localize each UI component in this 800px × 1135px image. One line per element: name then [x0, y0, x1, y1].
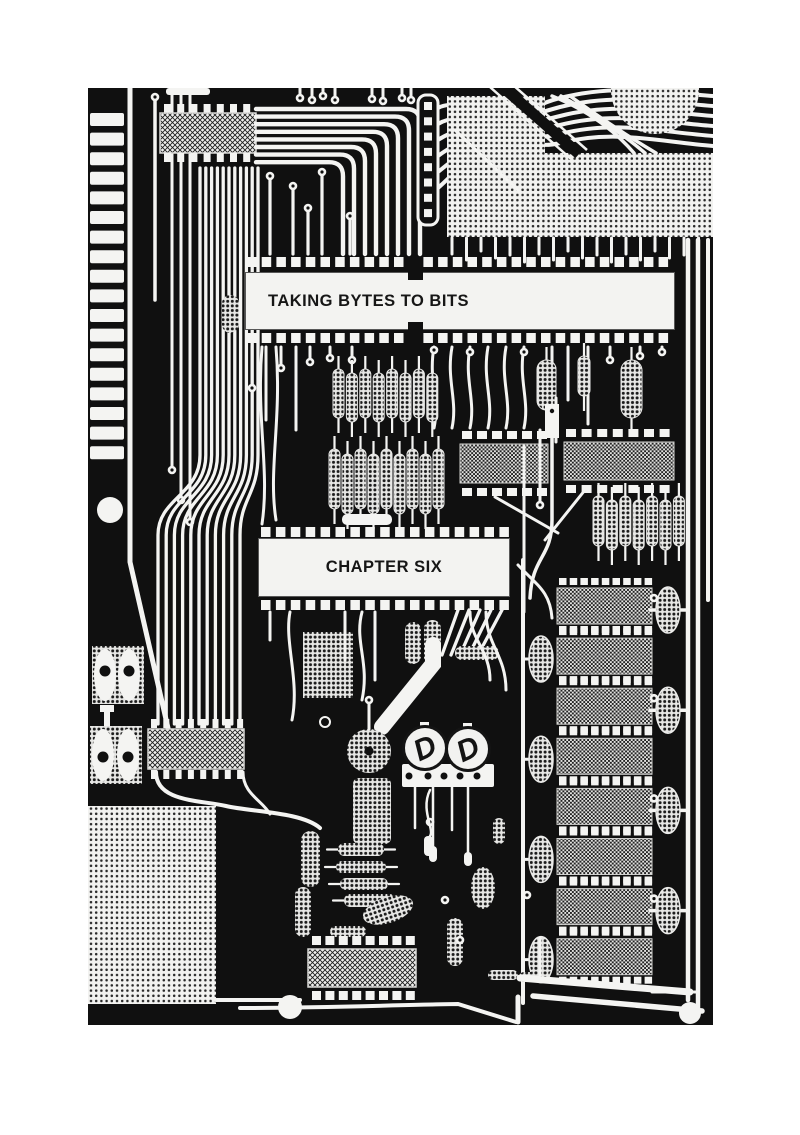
- edge-finger: [90, 133, 124, 146]
- pin-pad: [424, 133, 432, 141]
- resistor: [381, 449, 392, 509]
- hole: [406, 773, 413, 780]
- pin-pad: [602, 778, 610, 785]
- pin-pad: [392, 991, 401, 1000]
- resistor: [621, 360, 642, 418]
- edge-finger: [90, 368, 124, 381]
- pin-pad: [225, 719, 231, 728]
- pin-pad: [526, 257, 536, 267]
- pin-pad: [602, 929, 610, 936]
- pin-pad: [325, 991, 334, 1000]
- via-hole: [367, 698, 370, 701]
- capacitor: [336, 861, 386, 873]
- via-hole: [381, 99, 384, 102]
- resistor: [427, 373, 438, 422]
- capacitor: [338, 843, 384, 856]
- pin-pad: [350, 257, 360, 267]
- resistor: [329, 449, 340, 509]
- via-hole: [321, 94, 324, 97]
- pin-pad: [247, 257, 257, 267]
- hole: [474, 773, 481, 780]
- pin-pad: [392, 936, 401, 945]
- pin-pad: [623, 829, 631, 836]
- pin-pad: [243, 104, 250, 113]
- pin-pad: [499, 600, 509, 610]
- pin-pad: [570, 333, 580, 343]
- edge-finger: [90, 348, 124, 361]
- pin-pad: [291, 600, 301, 610]
- memory-chip: [557, 588, 652, 624]
- capacitor: [529, 736, 553, 782]
- pin-pad: [291, 527, 301, 537]
- capacitor: [301, 831, 320, 887]
- via-hole: [432, 348, 435, 351]
- pin-pad: [394, 333, 404, 343]
- pin-pad: [379, 257, 389, 267]
- pin-pad: [306, 257, 316, 267]
- pin-pad: [312, 936, 321, 945]
- capacitor: [529, 836, 553, 882]
- pin-pad: [570, 778, 578, 785]
- capacitor: [488, 970, 518, 980]
- pin-pad: [410, 527, 420, 537]
- edge-finger: [90, 289, 124, 302]
- pin-pad: [580, 879, 588, 886]
- via-hole: [660, 350, 663, 353]
- pin-pad: [306, 333, 316, 343]
- resistor: [420, 454, 431, 514]
- via-hole: [608, 358, 611, 361]
- capacitor: [455, 646, 499, 660]
- pin-pad: [591, 628, 599, 635]
- edge-finger: [90, 231, 124, 244]
- pin-pad: [645, 678, 653, 685]
- pin-pad: [200, 719, 206, 728]
- hole: [441, 773, 448, 780]
- pin-pad: [602, 879, 610, 886]
- pin-pad: [580, 678, 588, 685]
- top-right-halftone: [447, 88, 713, 237]
- pin-pad: [602, 578, 610, 585]
- pin-pad: [440, 600, 450, 610]
- hole: [457, 773, 464, 780]
- hole: [98, 752, 109, 763]
- hole: [123, 752, 134, 763]
- pin-pad: [623, 778, 631, 785]
- pin-pad: [597, 485, 607, 493]
- bottom-left-block: [88, 806, 216, 1004]
- pin-pad: [615, 333, 625, 343]
- pin-pad: [163, 719, 169, 728]
- sip-strip: [418, 95, 438, 225]
- edge-finger: [90, 270, 124, 283]
- pin-pad: [623, 728, 631, 735]
- pin-pad: [645, 628, 653, 635]
- pin-pad: [645, 879, 653, 886]
- capacitor: [353, 778, 391, 844]
- pin-pad: [306, 600, 316, 610]
- pin-pad: [645, 578, 653, 585]
- pin-pad: [188, 770, 194, 779]
- pin-pad: [613, 778, 621, 785]
- pin-pad: [424, 179, 432, 187]
- pin-pad: [559, 879, 567, 886]
- component: [342, 514, 392, 525]
- pin-pad: [204, 104, 211, 113]
- component: [464, 852, 472, 866]
- pin-pad: [634, 829, 642, 836]
- pin-pad: [507, 488, 517, 496]
- pin-pad: [634, 678, 642, 685]
- pin-pad: [262, 257, 272, 267]
- via-hole: [525, 893, 528, 896]
- edge-finger: [90, 211, 124, 224]
- pin-pad: [628, 485, 638, 493]
- pin-pad: [438, 333, 448, 343]
- pin-pad: [217, 104, 224, 113]
- pin-pad: [591, 829, 599, 836]
- pin-pad: [659, 333, 669, 343]
- pin-pad: [379, 991, 388, 1000]
- pin-pad: [570, 929, 578, 936]
- pin-pad: [425, 600, 435, 610]
- pin-pad: [497, 257, 507, 267]
- pin-pad: [559, 829, 567, 836]
- pin-pad: [644, 485, 654, 493]
- pin-pad: [237, 719, 243, 728]
- pin-pad: [164, 153, 171, 162]
- pin-pad: [151, 719, 157, 728]
- pin-pad: [425, 527, 435, 537]
- pin-pad: [634, 578, 642, 585]
- hole: [425, 773, 432, 780]
- pin-pad: [570, 829, 578, 836]
- pin-pad: [336, 527, 346, 537]
- pin-pad: [261, 527, 271, 537]
- pin-pad: [556, 257, 566, 267]
- via-hole: [333, 98, 336, 101]
- resistor: [620, 496, 631, 546]
- via-hole: [306, 206, 309, 209]
- pin-pad: [230, 104, 237, 113]
- pin-pad: [321, 527, 331, 537]
- via-hole: [268, 174, 271, 177]
- pin-pad: [204, 153, 211, 162]
- pin-pad: [470, 527, 480, 537]
- pin-pad: [350, 333, 360, 343]
- pin-pad: [262, 333, 272, 343]
- pin-pad: [325, 936, 334, 945]
- resistor: [373, 373, 384, 422]
- pin-pad: [613, 929, 621, 936]
- pin-pad: [276, 333, 286, 343]
- pin-pad: [366, 991, 375, 1000]
- ic-chip: [564, 442, 674, 480]
- chapter-heading-text: TAKING BYTES TO BITS: [268, 292, 469, 311]
- pin-pad: [424, 102, 432, 110]
- pin-pad: [645, 977, 653, 984]
- pin-pad: [623, 628, 631, 635]
- pin-pad: [566, 485, 576, 493]
- pin-pad: [497, 333, 507, 343]
- via-hole: [400, 96, 403, 99]
- pin-pad: [213, 770, 219, 779]
- edge-finger: [90, 152, 124, 165]
- pin-pad: [217, 153, 224, 162]
- pin-pad: [379, 936, 388, 945]
- pin-pad: [582, 429, 592, 437]
- resistor: [660, 500, 671, 550]
- memory-chip: [557, 839, 652, 875]
- pin-pad: [276, 600, 286, 610]
- pin-pad: [623, 929, 631, 936]
- pin-pad: [306, 527, 316, 537]
- pin-pad: [321, 257, 331, 267]
- pin-pad: [634, 929, 642, 936]
- pin-pad: [613, 829, 621, 836]
- chapter-number-box: CHAPTER SIX: [258, 538, 510, 597]
- capacitor: [493, 818, 505, 844]
- pin-pad: [213, 719, 219, 728]
- resistor: [333, 369, 344, 418]
- pad: [97, 497, 123, 523]
- pin-pad: [424, 148, 432, 156]
- resistor: [360, 369, 371, 418]
- pin-pad: [570, 728, 578, 735]
- pin-pad: [485, 527, 495, 537]
- pin-pad: [350, 527, 360, 537]
- pin-pad: [335, 333, 345, 343]
- resistor: [537, 360, 556, 410]
- pin-pad: [591, 678, 599, 685]
- pin-pad: [190, 104, 197, 113]
- pin-pad: [522, 431, 532, 439]
- pin-pad: [602, 829, 610, 836]
- pin-pad: [176, 719, 182, 728]
- pin-pad: [453, 257, 463, 267]
- pin-pad: [176, 770, 182, 779]
- pin-pad: [623, 678, 631, 685]
- pin-pad: [602, 628, 610, 635]
- pin-pad: [613, 429, 623, 437]
- pin-pad: [659, 257, 669, 267]
- resistor: [407, 449, 418, 509]
- pin-pad: [559, 678, 567, 685]
- pin-pad: [623, 879, 631, 886]
- pin-pad: [645, 778, 653, 785]
- pin-pad: [291, 257, 301, 267]
- via-hole: [153, 95, 156, 98]
- hole: [100, 666, 111, 677]
- pin-pad: [613, 578, 621, 585]
- resistor: [413, 369, 424, 418]
- edge-finger: [90, 172, 124, 185]
- pin-pad: [507, 431, 517, 439]
- resistor: [673, 496, 684, 546]
- pin-pad: [660, 429, 670, 437]
- pin-pad: [645, 929, 653, 936]
- pin-pad: [336, 600, 346, 610]
- pin-pad: [424, 194, 432, 202]
- pin-pad: [492, 488, 502, 496]
- pin-pad: [177, 153, 184, 162]
- via-hole: [638, 354, 641, 357]
- capacitor: [529, 636, 553, 682]
- pin-pad: [645, 728, 653, 735]
- via-hole: [310, 98, 313, 101]
- pin-pad: [339, 991, 348, 1000]
- pin-pad: [644, 429, 654, 437]
- resistor: [433, 449, 444, 509]
- pin-pad: [634, 728, 642, 735]
- top-left-ic: [160, 104, 256, 162]
- pin-pad: [321, 600, 331, 610]
- pin-pad: [591, 929, 599, 936]
- pin-pad: [526, 333, 536, 343]
- component: [424, 836, 433, 856]
- pin-pad: [365, 600, 375, 610]
- pin-pad: [424, 117, 432, 125]
- pin-pad: [580, 578, 588, 585]
- pin-pad: [580, 628, 588, 635]
- pin-pad: [312, 991, 321, 1000]
- via-hole: [291, 184, 294, 187]
- resistor: [394, 454, 405, 514]
- pin-pad: [634, 778, 642, 785]
- memory-chip: [557, 738, 652, 774]
- pin-pad: [645, 829, 653, 836]
- pin-pad: [613, 485, 623, 493]
- via-hole: [320, 170, 323, 173]
- edge-finger: [90, 191, 124, 204]
- pin-pad: [440, 527, 450, 537]
- pin-pad: [230, 153, 237, 162]
- resistor: [647, 496, 658, 546]
- pin-pad: [482, 333, 492, 343]
- pin-pad: [559, 578, 567, 585]
- pin-pad: [423, 333, 433, 343]
- pin-pad: [453, 333, 463, 343]
- pad: [278, 995, 302, 1019]
- resistor: [387, 369, 398, 418]
- pin-pad: [559, 929, 567, 936]
- via-hole: [468, 350, 471, 353]
- pin-pad: [468, 257, 478, 267]
- pin-pad: [512, 257, 521, 267]
- sip-resistor-strip: [418, 95, 438, 225]
- pin-pad: [613, 879, 621, 886]
- pin-pad: [395, 600, 405, 610]
- pin-pad: [321, 333, 331, 343]
- pin-pad: [591, 778, 599, 785]
- pin-pad: [591, 728, 599, 735]
- pin-pad: [570, 257, 580, 267]
- memory-chip: [557, 688, 652, 724]
- resistor: [355, 449, 366, 509]
- hole: [124, 666, 135, 677]
- pin-pad: [163, 770, 169, 779]
- pin-pad: [423, 257, 433, 267]
- pin-pad: [243, 153, 250, 162]
- pin-pad: [559, 728, 567, 735]
- pin-pad: [164, 104, 171, 113]
- pin-pad: [424, 163, 432, 171]
- via-hole: [443, 898, 446, 901]
- halftone-area: [88, 806, 216, 1004]
- pin-pad: [379, 333, 389, 343]
- memory-chip: [557, 939, 652, 975]
- edge-finger: [90, 309, 124, 322]
- via-hole: [652, 596, 655, 599]
- pin-pad: [623, 977, 631, 984]
- pin-pad: [644, 257, 654, 267]
- pin-pad: [644, 333, 654, 343]
- via-hole: [328, 356, 331, 359]
- pin-pad: [559, 628, 567, 635]
- memory-chip: [557, 638, 652, 674]
- resistor: [578, 356, 590, 396]
- memory-chip: [557, 889, 652, 925]
- pin-pad: [585, 257, 595, 267]
- pin-pad: [600, 257, 610, 267]
- resistor: [400, 373, 411, 422]
- memory-chip: [557, 788, 652, 824]
- pin-pad: [541, 257, 551, 267]
- edge-finger: [90, 387, 124, 400]
- pin-pad: [394, 257, 404, 267]
- pin-pad: [350, 600, 360, 610]
- pin-pad: [424, 209, 432, 217]
- pcb-photo: DD TAKING BYTES TO BITS CHAPTER SIX: [88, 88, 713, 1025]
- via-hole: [308, 360, 311, 363]
- edge-finger: [90, 329, 124, 342]
- pad: [679, 1002, 701, 1024]
- pin-pad: [410, 600, 420, 610]
- via-hole: [298, 96, 301, 99]
- pin-pad: [477, 431, 487, 439]
- via-hole: [170, 468, 173, 471]
- pin-pad: [613, 628, 621, 635]
- capacitor: [330, 926, 366, 937]
- pin-pad: [570, 879, 578, 886]
- ic-chip: [160, 113, 256, 153]
- resistor: [606, 500, 617, 550]
- pin-pad: [613, 678, 621, 685]
- pin-pad: [499, 527, 509, 537]
- pin-pad: [556, 333, 566, 343]
- pin-pad: [615, 257, 625, 267]
- pin-pad: [559, 778, 567, 785]
- pin-pad: [477, 488, 487, 496]
- pin-pad: [339, 936, 348, 945]
- pin-pad: [462, 488, 472, 496]
- pin-pad: [455, 600, 465, 610]
- pin-pad: [570, 578, 578, 585]
- pin-pad: [261, 600, 271, 610]
- pin-pad: [485, 600, 495, 610]
- resistor: [633, 500, 644, 550]
- pin-pad: [629, 257, 639, 267]
- edge-finger: [90, 427, 124, 440]
- pin-pad: [335, 257, 345, 267]
- pin-pad: [352, 936, 361, 945]
- pin-pad: [591, 879, 599, 886]
- via-hole: [370, 97, 373, 100]
- pin-pad: [365, 257, 375, 267]
- pin-pad: [482, 257, 492, 267]
- pin-pad: [597, 429, 607, 437]
- pin-pad: [660, 485, 670, 493]
